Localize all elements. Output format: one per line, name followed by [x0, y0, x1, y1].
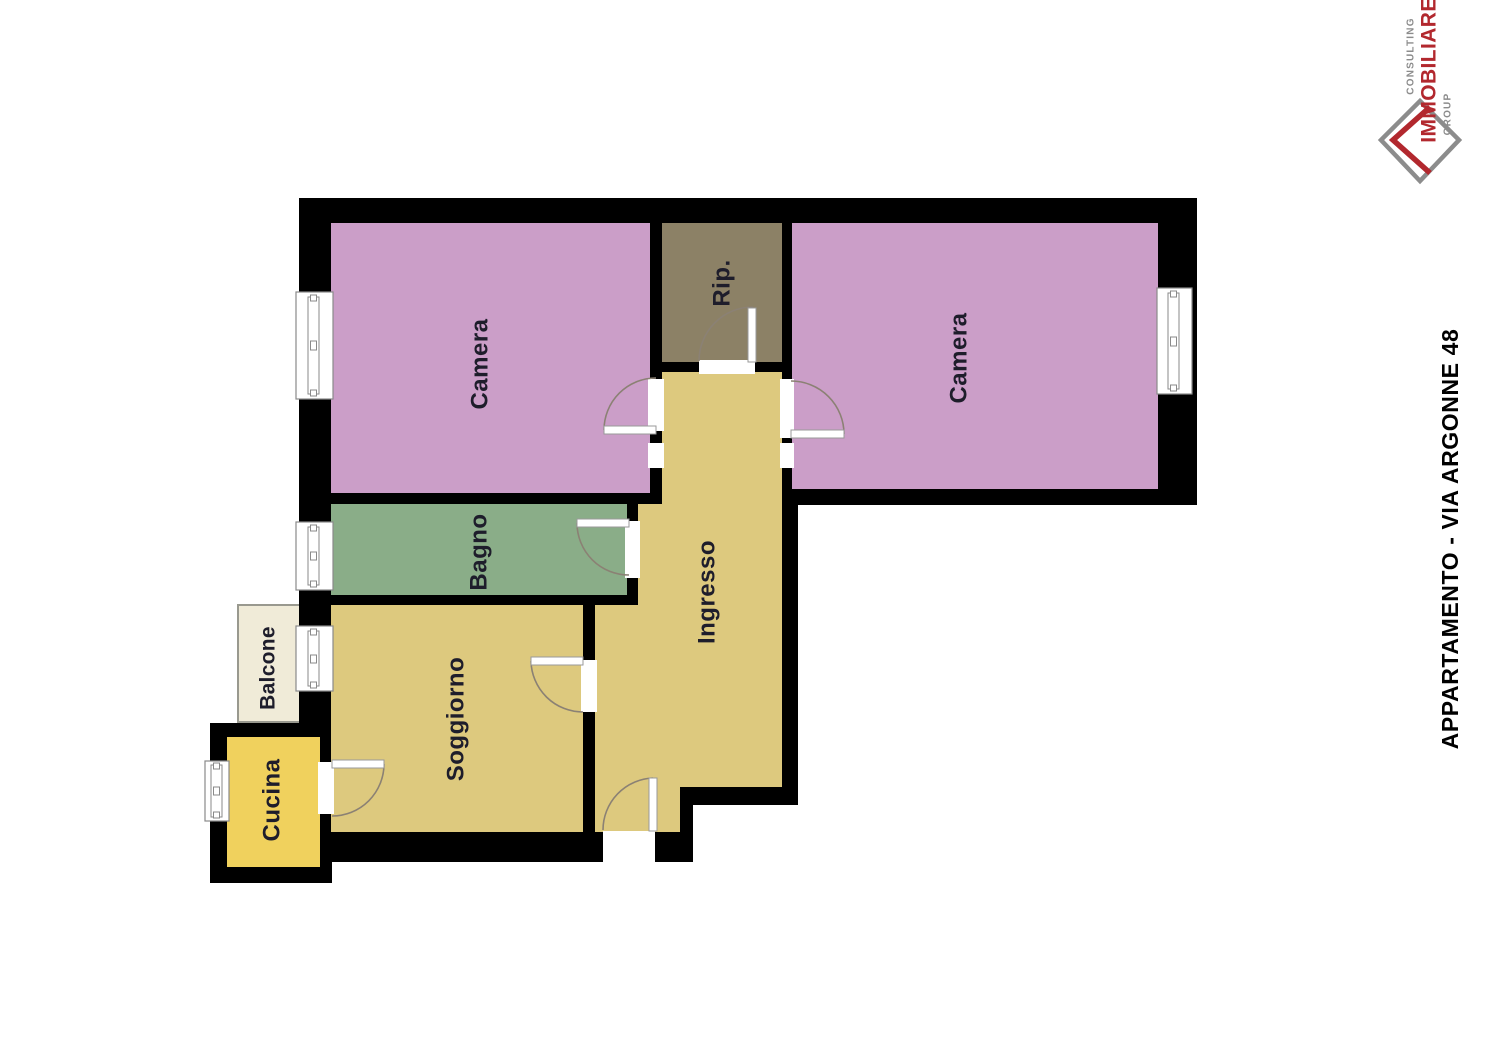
label-balcone: Balcone [256, 626, 279, 710]
label-bagno: Bagno [465, 513, 492, 590]
label-soggiorno: Soggiorno [442, 657, 469, 781]
cucina-window [205, 761, 229, 821]
camera-2-window [1157, 288, 1192, 394]
window-handle [311, 629, 317, 635]
logo-consulting-text: CONSULTING [1406, 17, 1417, 94]
window-handle [311, 525, 317, 531]
window-handle [311, 682, 317, 688]
window-handle [1171, 291, 1177, 297]
door-leaf [332, 760, 384, 768]
floorplan-page: Camera Rip. Camera Bagno Ingresso Soggio… [0, 0, 1485, 1050]
door-leaf [748, 308, 756, 362]
soggiorno-door-opening [581, 660, 597, 712]
floorplan-canvas: Camera Rip. Camera Bagno Ingresso Soggio… [0, 0, 1485, 1050]
side-title-wrap: APPARTAMENTO - VIA ARGONNE 48 [1437, 329, 1463, 750]
window-handle [214, 812, 220, 818]
window-handle [311, 390, 317, 396]
label-rip: Rip. [708, 259, 735, 306]
window-handle [1171, 337, 1177, 346]
logo-group-text: GROUP [1443, 93, 1454, 136]
logo-consulting-wrap: CONSULTING [1406, 17, 1417, 94]
window-handle [311, 581, 317, 587]
camera-1-wall-notch [648, 443, 664, 468]
window-handle [311, 295, 317, 301]
side-title: APPARTAMENTO - VIA ARGONNE 48 [1437, 329, 1463, 750]
cucina-door-opening [318, 762, 334, 814]
window-handle [214, 763, 220, 769]
door-leaf [531, 657, 583, 665]
rip-door-opening [699, 360, 755, 374]
camera-1-window [296, 292, 333, 399]
window-handle [311, 341, 317, 350]
soggiorno-window [296, 626, 333, 691]
label-ingresso: Ingresso [693, 540, 720, 644]
door-leaf [604, 426, 656, 434]
window-handle [214, 787, 220, 795]
label-camera-2: Camera [945, 312, 972, 403]
camera-2-door-opening [780, 379, 794, 438]
camera-2-wall-notch [780, 443, 794, 468]
window-handle [311, 552, 317, 560]
room-camera-2 [792, 223, 1158, 489]
door-leaf [649, 778, 657, 831]
bagno-window [296, 522, 333, 590]
logo-group-wrap: GROUP [1443, 93, 1454, 136]
entrance-door-opening [603, 831, 655, 863]
camera-1-door-opening [648, 379, 664, 431]
door-leaf [577, 519, 629, 527]
label-cucina: Cucina [258, 758, 285, 841]
logo-immobiliare-wrap: IMMOBILIARE [1417, 0, 1440, 143]
window-handle [311, 655, 317, 663]
window-handle [1171, 385, 1177, 391]
label-camera-1: Camera [466, 318, 493, 409]
door-leaf [791, 430, 844, 438]
logo-immobiliare-text: IMMOBILIARE [1417, 0, 1440, 143]
bagno-door-opening [625, 521, 640, 578]
